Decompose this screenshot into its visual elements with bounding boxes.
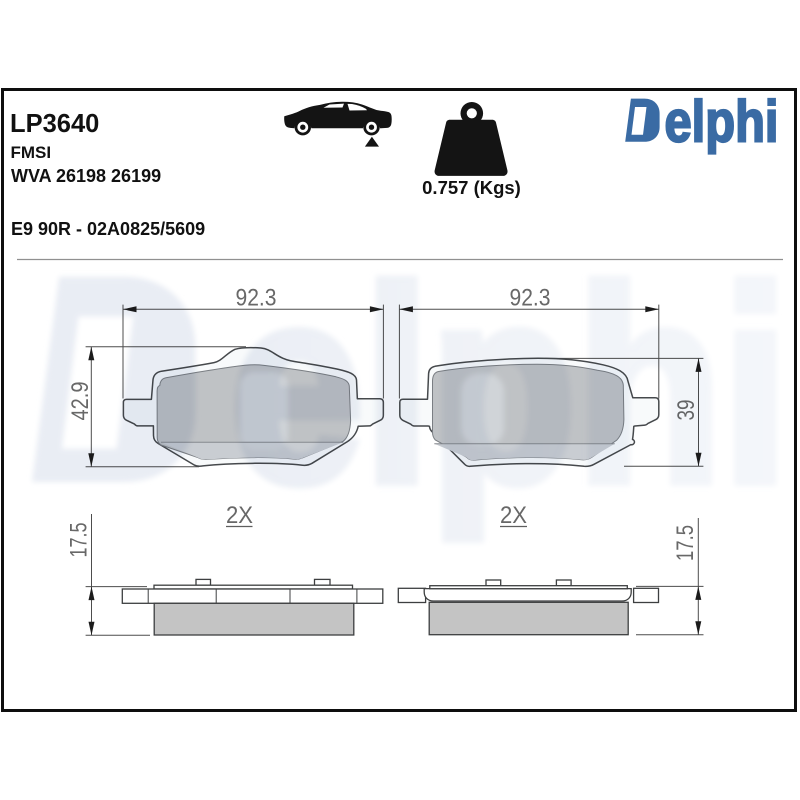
svg-text:elphi: elphi: [231, 233, 789, 541]
svg-text:17.5: 17.5: [66, 523, 93, 558]
svg-text:elphi: elphi: [665, 90, 779, 155]
